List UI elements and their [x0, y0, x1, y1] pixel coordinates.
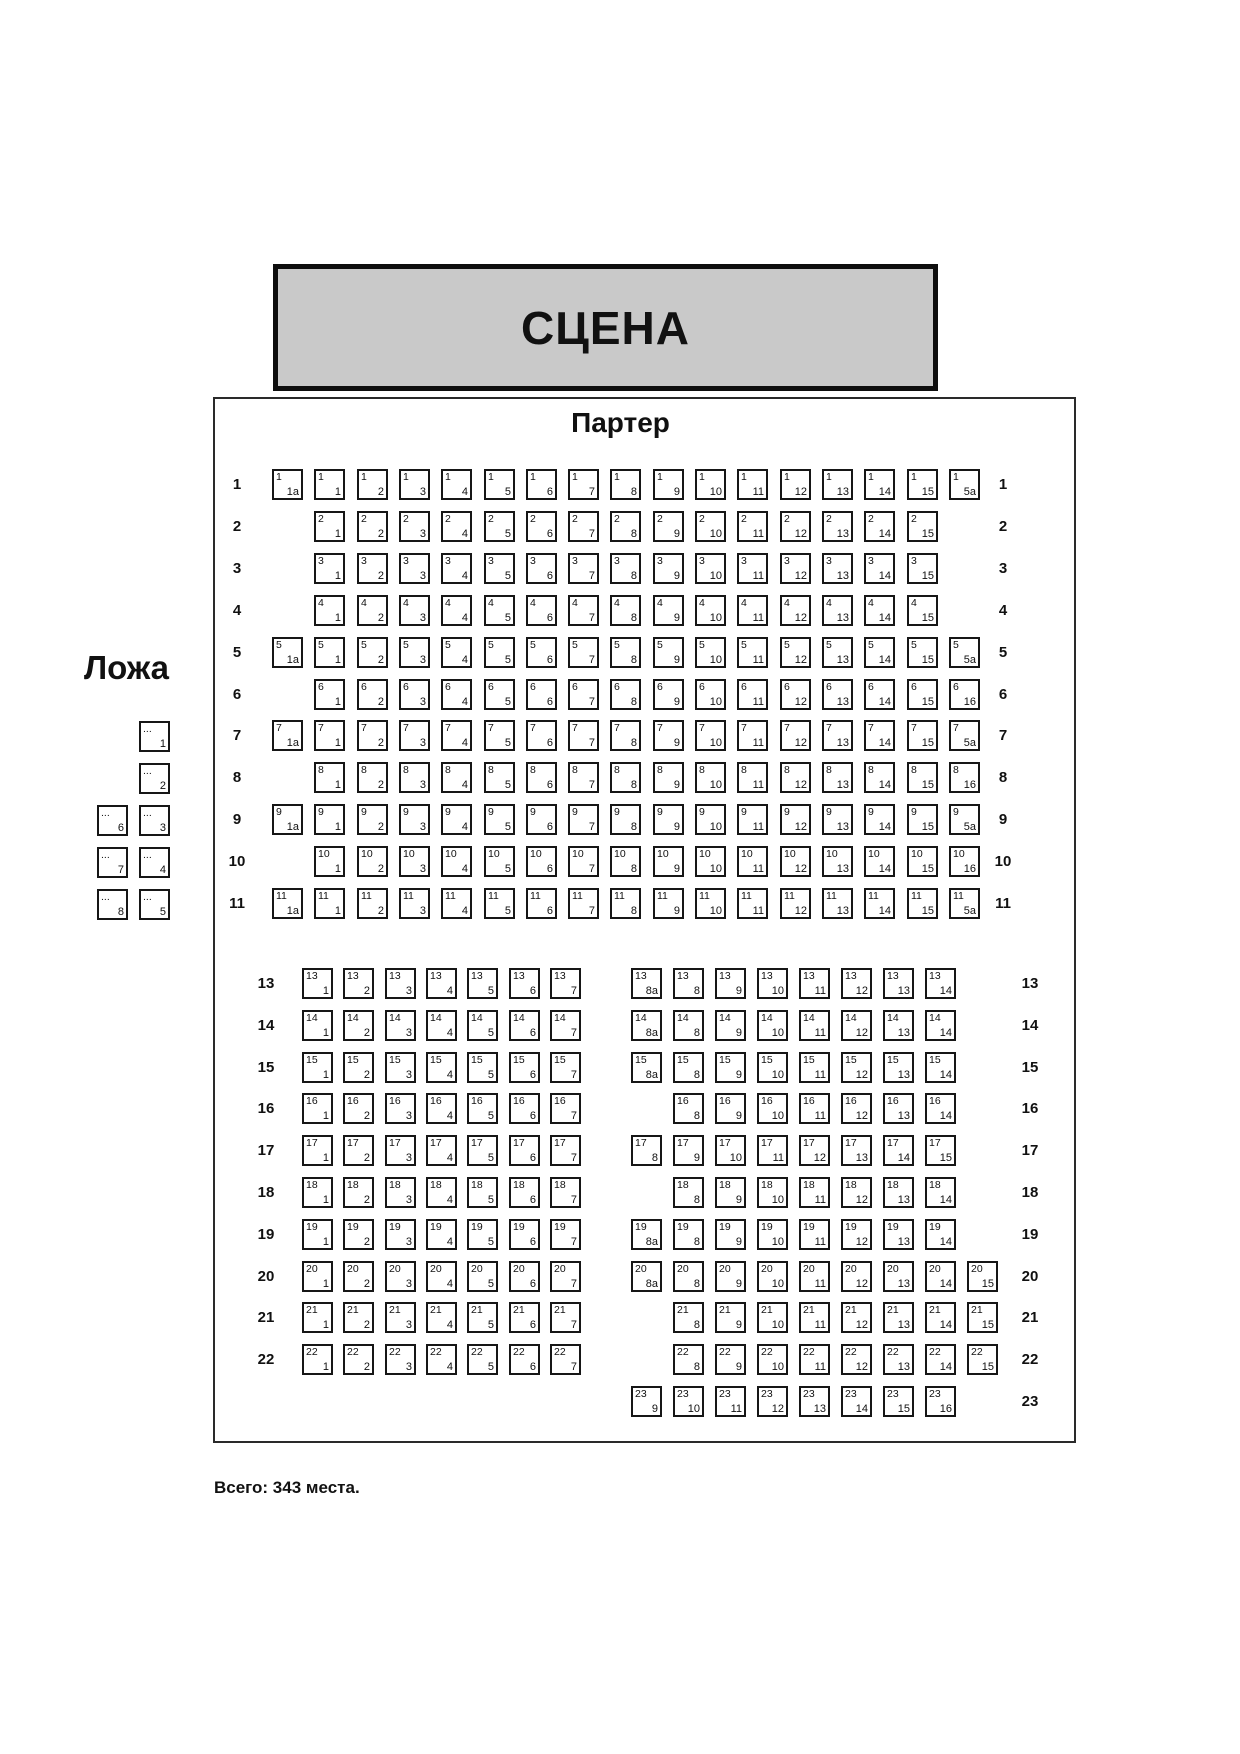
- seat-r20-3[interactable]: 203: [385, 1261, 416, 1292]
- seat-r22-8[interactable]: 228: [673, 1344, 704, 1375]
- seat-r16-10[interactable]: 1610: [757, 1093, 788, 1124]
- seat-r21-4[interactable]: 214: [426, 1302, 457, 1333]
- seat-r17-15[interactable]: 1715: [925, 1135, 956, 1166]
- seat-r4-8[interactable]: 48: [610, 595, 641, 626]
- seat-r21-14[interactable]: 2114: [925, 1302, 956, 1333]
- seat-r20-9[interactable]: 209: [715, 1261, 746, 1292]
- seat-r18-5[interactable]: 185: [467, 1177, 498, 1208]
- seat-r21-10[interactable]: 2110: [757, 1302, 788, 1333]
- seat-r19-10[interactable]: 1910: [757, 1219, 788, 1250]
- seat-r2-12[interactable]: 212: [780, 511, 811, 542]
- seat-r18-1[interactable]: 181: [302, 1177, 333, 1208]
- seat-r23-14[interactable]: 2314: [841, 1386, 872, 1417]
- seat-r20-1[interactable]: 201: [302, 1261, 333, 1292]
- seat-r11-12[interactable]: 1112: [780, 888, 811, 919]
- seat-r9-14[interactable]: 914: [864, 804, 895, 835]
- seat-r11-5[interactable]: 115: [484, 888, 515, 919]
- seat-r19-4[interactable]: 194: [426, 1219, 457, 1250]
- seat-r21-7[interactable]: 217: [550, 1302, 581, 1333]
- seat-r1-10[interactable]: 110: [695, 469, 726, 500]
- seat-r4-15[interactable]: 415: [907, 595, 938, 626]
- seat-r9-4[interactable]: 94: [441, 804, 472, 835]
- seat-r18-3[interactable]: 183: [385, 1177, 416, 1208]
- seat-r10-14[interactable]: 1014: [864, 846, 895, 877]
- seat-r1-3[interactable]: 13: [399, 469, 430, 500]
- seat-r3-15[interactable]: 315: [907, 553, 938, 584]
- seat-r7-15[interactable]: 715: [907, 720, 938, 751]
- seat-r14-9[interactable]: 149: [715, 1010, 746, 1041]
- seat-r20-15[interactable]: 2015: [967, 1261, 998, 1292]
- seat-r10-5[interactable]: 105: [484, 846, 515, 877]
- seat-r2-11[interactable]: 211: [737, 511, 768, 542]
- seat-r17-6[interactable]: 176: [509, 1135, 540, 1166]
- seat-r5-7[interactable]: 57: [568, 637, 599, 668]
- seat-r6-13[interactable]: 613: [822, 679, 853, 710]
- seat-r8-6[interactable]: 86: [526, 762, 557, 793]
- seat-r17-2[interactable]: 172: [343, 1135, 374, 1166]
- seat-r8-9[interactable]: 89: [653, 762, 684, 793]
- seat-r4-4[interactable]: 44: [441, 595, 472, 626]
- seat-r13-1[interactable]: 131: [302, 968, 333, 999]
- seat-r2-6[interactable]: 26: [526, 511, 557, 542]
- seat-r1-1[interactable]: 11: [314, 469, 345, 500]
- seat-r1-2[interactable]: 12: [357, 469, 388, 500]
- seat-r4-13[interactable]: 413: [822, 595, 853, 626]
- seat-r22-3[interactable]: 223: [385, 1344, 416, 1375]
- seat-r14-12[interactable]: 1412: [841, 1010, 872, 1041]
- seat-r22-15[interactable]: 2215: [967, 1344, 998, 1375]
- seat-r3-13[interactable]: 313: [822, 553, 853, 584]
- seat-r21-5[interactable]: 215: [467, 1302, 498, 1333]
- seat-r2-4[interactable]: 24: [441, 511, 472, 542]
- seat-r14-8a[interactable]: 148a: [631, 1010, 662, 1041]
- seat-r13-8a[interactable]: 138a: [631, 968, 662, 999]
- seat-r2-9[interactable]: 29: [653, 511, 684, 542]
- seat-r5-9[interactable]: 59: [653, 637, 684, 668]
- seat-r19-12[interactable]: 1912: [841, 1219, 872, 1250]
- seat-r21-13[interactable]: 2113: [883, 1302, 914, 1333]
- seat-r23-9[interactable]: 239: [631, 1386, 662, 1417]
- seat-r20-4[interactable]: 204: [426, 1261, 457, 1292]
- seat-r15-2[interactable]: 152: [343, 1052, 374, 1083]
- seat-r6-10[interactable]: 610: [695, 679, 726, 710]
- seat-r20-8[interactable]: 208: [673, 1261, 704, 1292]
- seat-r3-14[interactable]: 314: [864, 553, 895, 584]
- seat-r21-9[interactable]: 219: [715, 1302, 746, 1333]
- seat-r22-13[interactable]: 2213: [883, 1344, 914, 1375]
- seat-r4-6[interactable]: 46: [526, 595, 557, 626]
- seat-r21-6[interactable]: 216: [509, 1302, 540, 1333]
- seat-r23-10[interactable]: 2310: [673, 1386, 704, 1417]
- seat-r23-13[interactable]: 2313: [799, 1386, 830, 1417]
- seat-r5-1a[interactable]: 51a: [272, 637, 303, 668]
- loge-seat-4[interactable]: ...4: [139, 847, 170, 878]
- seat-r15-6[interactable]: 156: [509, 1052, 540, 1083]
- seat-r18-12[interactable]: 1812: [841, 1177, 872, 1208]
- loge-seat-2[interactable]: ...2: [139, 763, 170, 794]
- seat-r14-11[interactable]: 1411: [799, 1010, 830, 1041]
- seat-r20-14[interactable]: 2014: [925, 1261, 956, 1292]
- seat-r5-3[interactable]: 53: [399, 637, 430, 668]
- seat-r15-8[interactable]: 158: [673, 1052, 704, 1083]
- seat-r1-5[interactable]: 15: [484, 469, 515, 500]
- seat-r15-12[interactable]: 1512: [841, 1052, 872, 1083]
- seat-r16-8[interactable]: 168: [673, 1093, 704, 1124]
- seat-r18-11[interactable]: 1811: [799, 1177, 830, 1208]
- seat-r18-8[interactable]: 188: [673, 1177, 704, 1208]
- seat-r1-9[interactable]: 19: [653, 469, 684, 500]
- loge-seat-3[interactable]: ...3: [139, 805, 170, 836]
- seat-r7-7[interactable]: 77: [568, 720, 599, 751]
- seat-r8-15[interactable]: 815: [907, 762, 938, 793]
- seat-r20-12[interactable]: 2012: [841, 1261, 872, 1292]
- seat-r10-9[interactable]: 109: [653, 846, 684, 877]
- seat-r10-12[interactable]: 1012: [780, 846, 811, 877]
- seat-r17-10[interactable]: 1710: [715, 1135, 746, 1166]
- seat-r13-3[interactable]: 133: [385, 968, 416, 999]
- seat-r18-6[interactable]: 186: [509, 1177, 540, 1208]
- seat-r19-14[interactable]: 1914: [925, 1219, 956, 1250]
- seat-r15-4[interactable]: 154: [426, 1052, 457, 1083]
- seat-r5-11[interactable]: 511: [737, 637, 768, 668]
- seat-r14-7[interactable]: 147: [550, 1010, 581, 1041]
- seat-r1-14[interactable]: 114: [864, 469, 895, 500]
- seat-r8-16[interactable]: 816: [949, 762, 980, 793]
- seat-r6-5[interactable]: 65: [484, 679, 515, 710]
- seat-r6-3[interactable]: 63: [399, 679, 430, 710]
- seat-r6-8[interactable]: 68: [610, 679, 641, 710]
- seat-r21-11[interactable]: 2111: [799, 1302, 830, 1333]
- seat-r8-4[interactable]: 84: [441, 762, 472, 793]
- seat-r11-13[interactable]: 1113: [822, 888, 853, 919]
- seat-r6-11[interactable]: 611: [737, 679, 768, 710]
- seat-r16-2[interactable]: 162: [343, 1093, 374, 1124]
- seat-r14-10[interactable]: 1410: [757, 1010, 788, 1041]
- seat-r8-11[interactable]: 811: [737, 762, 768, 793]
- seat-r23-15[interactable]: 2315: [883, 1386, 914, 1417]
- seat-r14-5[interactable]: 145: [467, 1010, 498, 1041]
- seat-r3-10[interactable]: 310: [695, 553, 726, 584]
- seat-r22-2[interactable]: 222: [343, 1344, 374, 1375]
- seat-r3-4[interactable]: 34: [441, 553, 472, 584]
- seat-r21-12[interactable]: 2112: [841, 1302, 872, 1333]
- seat-r17-5[interactable]: 175: [467, 1135, 498, 1166]
- seat-r13-10[interactable]: 1310: [757, 968, 788, 999]
- seat-r3-2[interactable]: 32: [357, 553, 388, 584]
- seat-r2-1[interactable]: 21: [314, 511, 345, 542]
- seat-r2-13[interactable]: 213: [822, 511, 853, 542]
- seat-r17-13[interactable]: 1713: [841, 1135, 872, 1166]
- seat-r5-6[interactable]: 56: [526, 637, 557, 668]
- seat-r9-5a[interactable]: 95a: [949, 804, 980, 835]
- loge-seat-6[interactable]: ...6: [97, 805, 128, 836]
- seat-r9-2[interactable]: 92: [357, 804, 388, 835]
- seat-r11-11[interactable]: 1111: [737, 888, 768, 919]
- seat-r1-6[interactable]: 16: [526, 469, 557, 500]
- seat-r9-15[interactable]: 915: [907, 804, 938, 835]
- seat-r10-15[interactable]: 1015: [907, 846, 938, 877]
- seat-r11-1a[interactable]: 111a: [272, 888, 303, 919]
- seat-r21-3[interactable]: 213: [385, 1302, 416, 1333]
- seat-r19-6[interactable]: 196: [509, 1219, 540, 1250]
- seat-r15-1[interactable]: 151: [302, 1052, 333, 1083]
- seat-r16-11[interactable]: 1611: [799, 1093, 830, 1124]
- seat-r9-6[interactable]: 96: [526, 804, 557, 835]
- seat-r2-2[interactable]: 22: [357, 511, 388, 542]
- seat-r17-3[interactable]: 173: [385, 1135, 416, 1166]
- seat-r4-14[interactable]: 414: [864, 595, 895, 626]
- seat-r19-2[interactable]: 192: [343, 1219, 374, 1250]
- seat-r16-14[interactable]: 1614: [925, 1093, 956, 1124]
- seat-r8-7[interactable]: 87: [568, 762, 599, 793]
- seat-r20-6[interactable]: 206: [509, 1261, 540, 1292]
- seat-r11-8[interactable]: 118: [610, 888, 641, 919]
- seat-r4-11[interactable]: 411: [737, 595, 768, 626]
- seat-r13-9[interactable]: 139: [715, 968, 746, 999]
- seat-r13-8[interactable]: 138: [673, 968, 704, 999]
- seat-r9-1a[interactable]: 91a: [272, 804, 303, 835]
- seat-r1-13[interactable]: 113: [822, 469, 853, 500]
- seat-r7-12[interactable]: 712: [780, 720, 811, 751]
- seat-r11-3[interactable]: 113: [399, 888, 430, 919]
- seat-r4-2[interactable]: 42: [357, 595, 388, 626]
- seat-r15-10[interactable]: 1510: [757, 1052, 788, 1083]
- seat-r7-9[interactable]: 79: [653, 720, 684, 751]
- seat-r16-4[interactable]: 164: [426, 1093, 457, 1124]
- seat-r16-1[interactable]: 161: [302, 1093, 333, 1124]
- seat-r15-9[interactable]: 159: [715, 1052, 746, 1083]
- seat-r1-7[interactable]: 17: [568, 469, 599, 500]
- seat-r5-1[interactable]: 51: [314, 637, 345, 668]
- seat-r17-1[interactable]: 171: [302, 1135, 333, 1166]
- seat-r8-14[interactable]: 814: [864, 762, 895, 793]
- seat-r5-13[interactable]: 513: [822, 637, 853, 668]
- seat-r5-10[interactable]: 510: [695, 637, 726, 668]
- seat-r16-5[interactable]: 165: [467, 1093, 498, 1124]
- seat-r22-12[interactable]: 2212: [841, 1344, 872, 1375]
- seat-r13-7[interactable]: 137: [550, 968, 581, 999]
- seat-r22-5[interactable]: 225: [467, 1344, 498, 1375]
- seat-r16-6[interactable]: 166: [509, 1093, 540, 1124]
- seat-r4-7[interactable]: 47: [568, 595, 599, 626]
- seat-r9-3[interactable]: 93: [399, 804, 430, 835]
- seat-r18-14[interactable]: 1814: [925, 1177, 956, 1208]
- seat-r8-2[interactable]: 82: [357, 762, 388, 793]
- loge-seat-8[interactable]: ...8: [97, 889, 128, 920]
- seat-r1-4[interactable]: 14: [441, 469, 472, 500]
- seat-r7-2[interactable]: 72: [357, 720, 388, 751]
- seat-r11-1[interactable]: 111: [314, 888, 345, 919]
- seat-r19-11[interactable]: 1911: [799, 1219, 830, 1250]
- seat-r3-1[interactable]: 31: [314, 553, 345, 584]
- seat-r1-15[interactable]: 115: [907, 469, 938, 500]
- seat-r5-5[interactable]: 55: [484, 637, 515, 668]
- seat-r8-13[interactable]: 813: [822, 762, 853, 793]
- seat-r16-12[interactable]: 1612: [841, 1093, 872, 1124]
- seat-r23-12[interactable]: 2312: [757, 1386, 788, 1417]
- seat-r21-2[interactable]: 212: [343, 1302, 374, 1333]
- seat-r9-13[interactable]: 913: [822, 804, 853, 835]
- seat-r11-6[interactable]: 116: [526, 888, 557, 919]
- seat-r10-6[interactable]: 106: [526, 846, 557, 877]
- seat-r6-2[interactable]: 62: [357, 679, 388, 710]
- seat-r3-12[interactable]: 312: [780, 553, 811, 584]
- seat-r17-11[interactable]: 1711: [757, 1135, 788, 1166]
- seat-r2-15[interactable]: 215: [907, 511, 938, 542]
- seat-r7-11[interactable]: 711: [737, 720, 768, 751]
- seat-r8-8[interactable]: 88: [610, 762, 641, 793]
- seat-r11-5a[interactable]: 115a: [949, 888, 980, 919]
- seat-r18-2[interactable]: 182: [343, 1177, 374, 1208]
- seat-r22-1[interactable]: 221: [302, 1344, 333, 1375]
- seat-r13-2[interactable]: 132: [343, 968, 374, 999]
- seat-r22-7[interactable]: 227: [550, 1344, 581, 1375]
- seat-r14-6[interactable]: 146: [509, 1010, 540, 1041]
- seat-r7-13[interactable]: 713: [822, 720, 853, 751]
- seat-r20-7[interactable]: 207: [550, 1261, 581, 1292]
- seat-r8-1[interactable]: 81: [314, 762, 345, 793]
- seat-r14-3[interactable]: 143: [385, 1010, 416, 1041]
- seat-r4-10[interactable]: 410: [695, 595, 726, 626]
- seat-r5-4[interactable]: 54: [441, 637, 472, 668]
- seat-r20-11[interactable]: 2011: [799, 1261, 830, 1292]
- seat-r10-10[interactable]: 1010: [695, 846, 726, 877]
- seat-r9-11[interactable]: 911: [737, 804, 768, 835]
- seat-r14-8[interactable]: 148: [673, 1010, 704, 1041]
- seat-r3-11[interactable]: 311: [737, 553, 768, 584]
- seat-r22-9[interactable]: 229: [715, 1344, 746, 1375]
- seat-r20-8a[interactable]: 208a: [631, 1261, 662, 1292]
- seat-r21-1[interactable]: 211: [302, 1302, 333, 1333]
- seat-r13-4[interactable]: 134: [426, 968, 457, 999]
- seat-r4-1[interactable]: 41: [314, 595, 345, 626]
- seat-r18-10[interactable]: 1810: [757, 1177, 788, 1208]
- seat-r19-7[interactable]: 197: [550, 1219, 581, 1250]
- seat-r23-16[interactable]: 2316: [925, 1386, 956, 1417]
- seat-r8-12[interactable]: 812: [780, 762, 811, 793]
- seat-r11-10[interactable]: 1110: [695, 888, 726, 919]
- seat-r16-9[interactable]: 169: [715, 1093, 746, 1124]
- seat-r6-14[interactable]: 614: [864, 679, 895, 710]
- seat-r20-13[interactable]: 2013: [883, 1261, 914, 1292]
- seat-r18-13[interactable]: 1813: [883, 1177, 914, 1208]
- seat-r14-14[interactable]: 1414: [925, 1010, 956, 1041]
- seat-r17-7[interactable]: 177: [550, 1135, 581, 1166]
- seat-r1-11[interactable]: 111: [737, 469, 768, 500]
- seat-r3-8[interactable]: 38: [610, 553, 641, 584]
- seat-r7-3[interactable]: 73: [399, 720, 430, 751]
- seat-r11-2[interactable]: 112: [357, 888, 388, 919]
- seat-r19-13[interactable]: 1913: [883, 1219, 914, 1250]
- seat-r13-12[interactable]: 1312: [841, 968, 872, 999]
- seat-r9-12[interactable]: 912: [780, 804, 811, 835]
- seat-r22-10[interactable]: 2210: [757, 1344, 788, 1375]
- seat-r8-10[interactable]: 810: [695, 762, 726, 793]
- seat-r15-11[interactable]: 1511: [799, 1052, 830, 1083]
- seat-r22-6[interactable]: 226: [509, 1344, 540, 1375]
- seat-r7-5[interactable]: 75: [484, 720, 515, 751]
- loge-seat-5[interactable]: ...5: [139, 889, 170, 920]
- seat-r6-1[interactable]: 61: [314, 679, 345, 710]
- seat-r22-4[interactable]: 224: [426, 1344, 457, 1375]
- seat-r17-9[interactable]: 179: [673, 1135, 704, 1166]
- seat-r9-8[interactable]: 98: [610, 804, 641, 835]
- seat-r7-5a[interactable]: 75a: [949, 720, 980, 751]
- seat-r9-10[interactable]: 910: [695, 804, 726, 835]
- seat-r6-6[interactable]: 66: [526, 679, 557, 710]
- seat-r5-14[interactable]: 514: [864, 637, 895, 668]
- seat-r9-9[interactable]: 99: [653, 804, 684, 835]
- seat-r14-1[interactable]: 141: [302, 1010, 333, 1041]
- seat-r2-5[interactable]: 25: [484, 511, 515, 542]
- seat-r5-15[interactable]: 515: [907, 637, 938, 668]
- seat-r19-9[interactable]: 199: [715, 1219, 746, 1250]
- seat-r1-5a[interactable]: 15a: [949, 469, 980, 500]
- seat-r6-12[interactable]: 612: [780, 679, 811, 710]
- seat-r15-8a[interactable]: 158a: [631, 1052, 662, 1083]
- seat-r3-3[interactable]: 33: [399, 553, 430, 584]
- seat-r16-13[interactable]: 1613: [883, 1093, 914, 1124]
- seat-r18-9[interactable]: 189: [715, 1177, 746, 1208]
- seat-r22-11[interactable]: 2211: [799, 1344, 830, 1375]
- seat-r4-5[interactable]: 45: [484, 595, 515, 626]
- seat-r19-8[interactable]: 198: [673, 1219, 704, 1250]
- seat-r20-5[interactable]: 205: [467, 1261, 498, 1292]
- seat-r10-2[interactable]: 102: [357, 846, 388, 877]
- seat-r9-7[interactable]: 97: [568, 804, 599, 835]
- seat-r7-1[interactable]: 71: [314, 720, 345, 751]
- seat-r7-6[interactable]: 76: [526, 720, 557, 751]
- seat-r14-4[interactable]: 144: [426, 1010, 457, 1041]
- seat-r5-8[interactable]: 58: [610, 637, 641, 668]
- seat-r2-3[interactable]: 23: [399, 511, 430, 542]
- seat-r16-7[interactable]: 167: [550, 1093, 581, 1124]
- seat-r6-7[interactable]: 67: [568, 679, 599, 710]
- seat-r13-5[interactable]: 135: [467, 968, 498, 999]
- seat-r2-14[interactable]: 214: [864, 511, 895, 542]
- seat-r6-4[interactable]: 64: [441, 679, 472, 710]
- seat-r16-3[interactable]: 163: [385, 1093, 416, 1124]
- seat-r7-10[interactable]: 710: [695, 720, 726, 751]
- seat-r1-12[interactable]: 112: [780, 469, 811, 500]
- seat-r2-7[interactable]: 27: [568, 511, 599, 542]
- seat-r13-11[interactable]: 1311: [799, 968, 830, 999]
- seat-r18-7[interactable]: 187: [550, 1177, 581, 1208]
- seat-r1-8[interactable]: 18: [610, 469, 641, 500]
- seat-r6-9[interactable]: 69: [653, 679, 684, 710]
- seat-r17-14[interactable]: 1714: [883, 1135, 914, 1166]
- seat-r14-13[interactable]: 1413: [883, 1010, 914, 1041]
- seat-r11-9[interactable]: 119: [653, 888, 684, 919]
- seat-r5-12[interactable]: 512: [780, 637, 811, 668]
- seat-r10-1[interactable]: 101: [314, 846, 345, 877]
- seat-r18-4[interactable]: 184: [426, 1177, 457, 1208]
- seat-r13-13[interactable]: 1313: [883, 968, 914, 999]
- seat-r3-9[interactable]: 39: [653, 553, 684, 584]
- seat-r19-1[interactable]: 191: [302, 1219, 333, 1250]
- seat-r13-6[interactable]: 136: [509, 968, 540, 999]
- seat-r11-15[interactable]: 1115: [907, 888, 938, 919]
- seat-r10-7[interactable]: 107: [568, 846, 599, 877]
- seat-r23-11[interactable]: 2311: [715, 1386, 746, 1417]
- seat-r8-3[interactable]: 83: [399, 762, 430, 793]
- seat-r4-3[interactable]: 43: [399, 595, 430, 626]
- seat-r15-3[interactable]: 153: [385, 1052, 416, 1083]
- seat-r10-13[interactable]: 1013: [822, 846, 853, 877]
- seat-r11-7[interactable]: 117: [568, 888, 599, 919]
- seat-r6-15[interactable]: 615: [907, 679, 938, 710]
- seat-r8-5[interactable]: 85: [484, 762, 515, 793]
